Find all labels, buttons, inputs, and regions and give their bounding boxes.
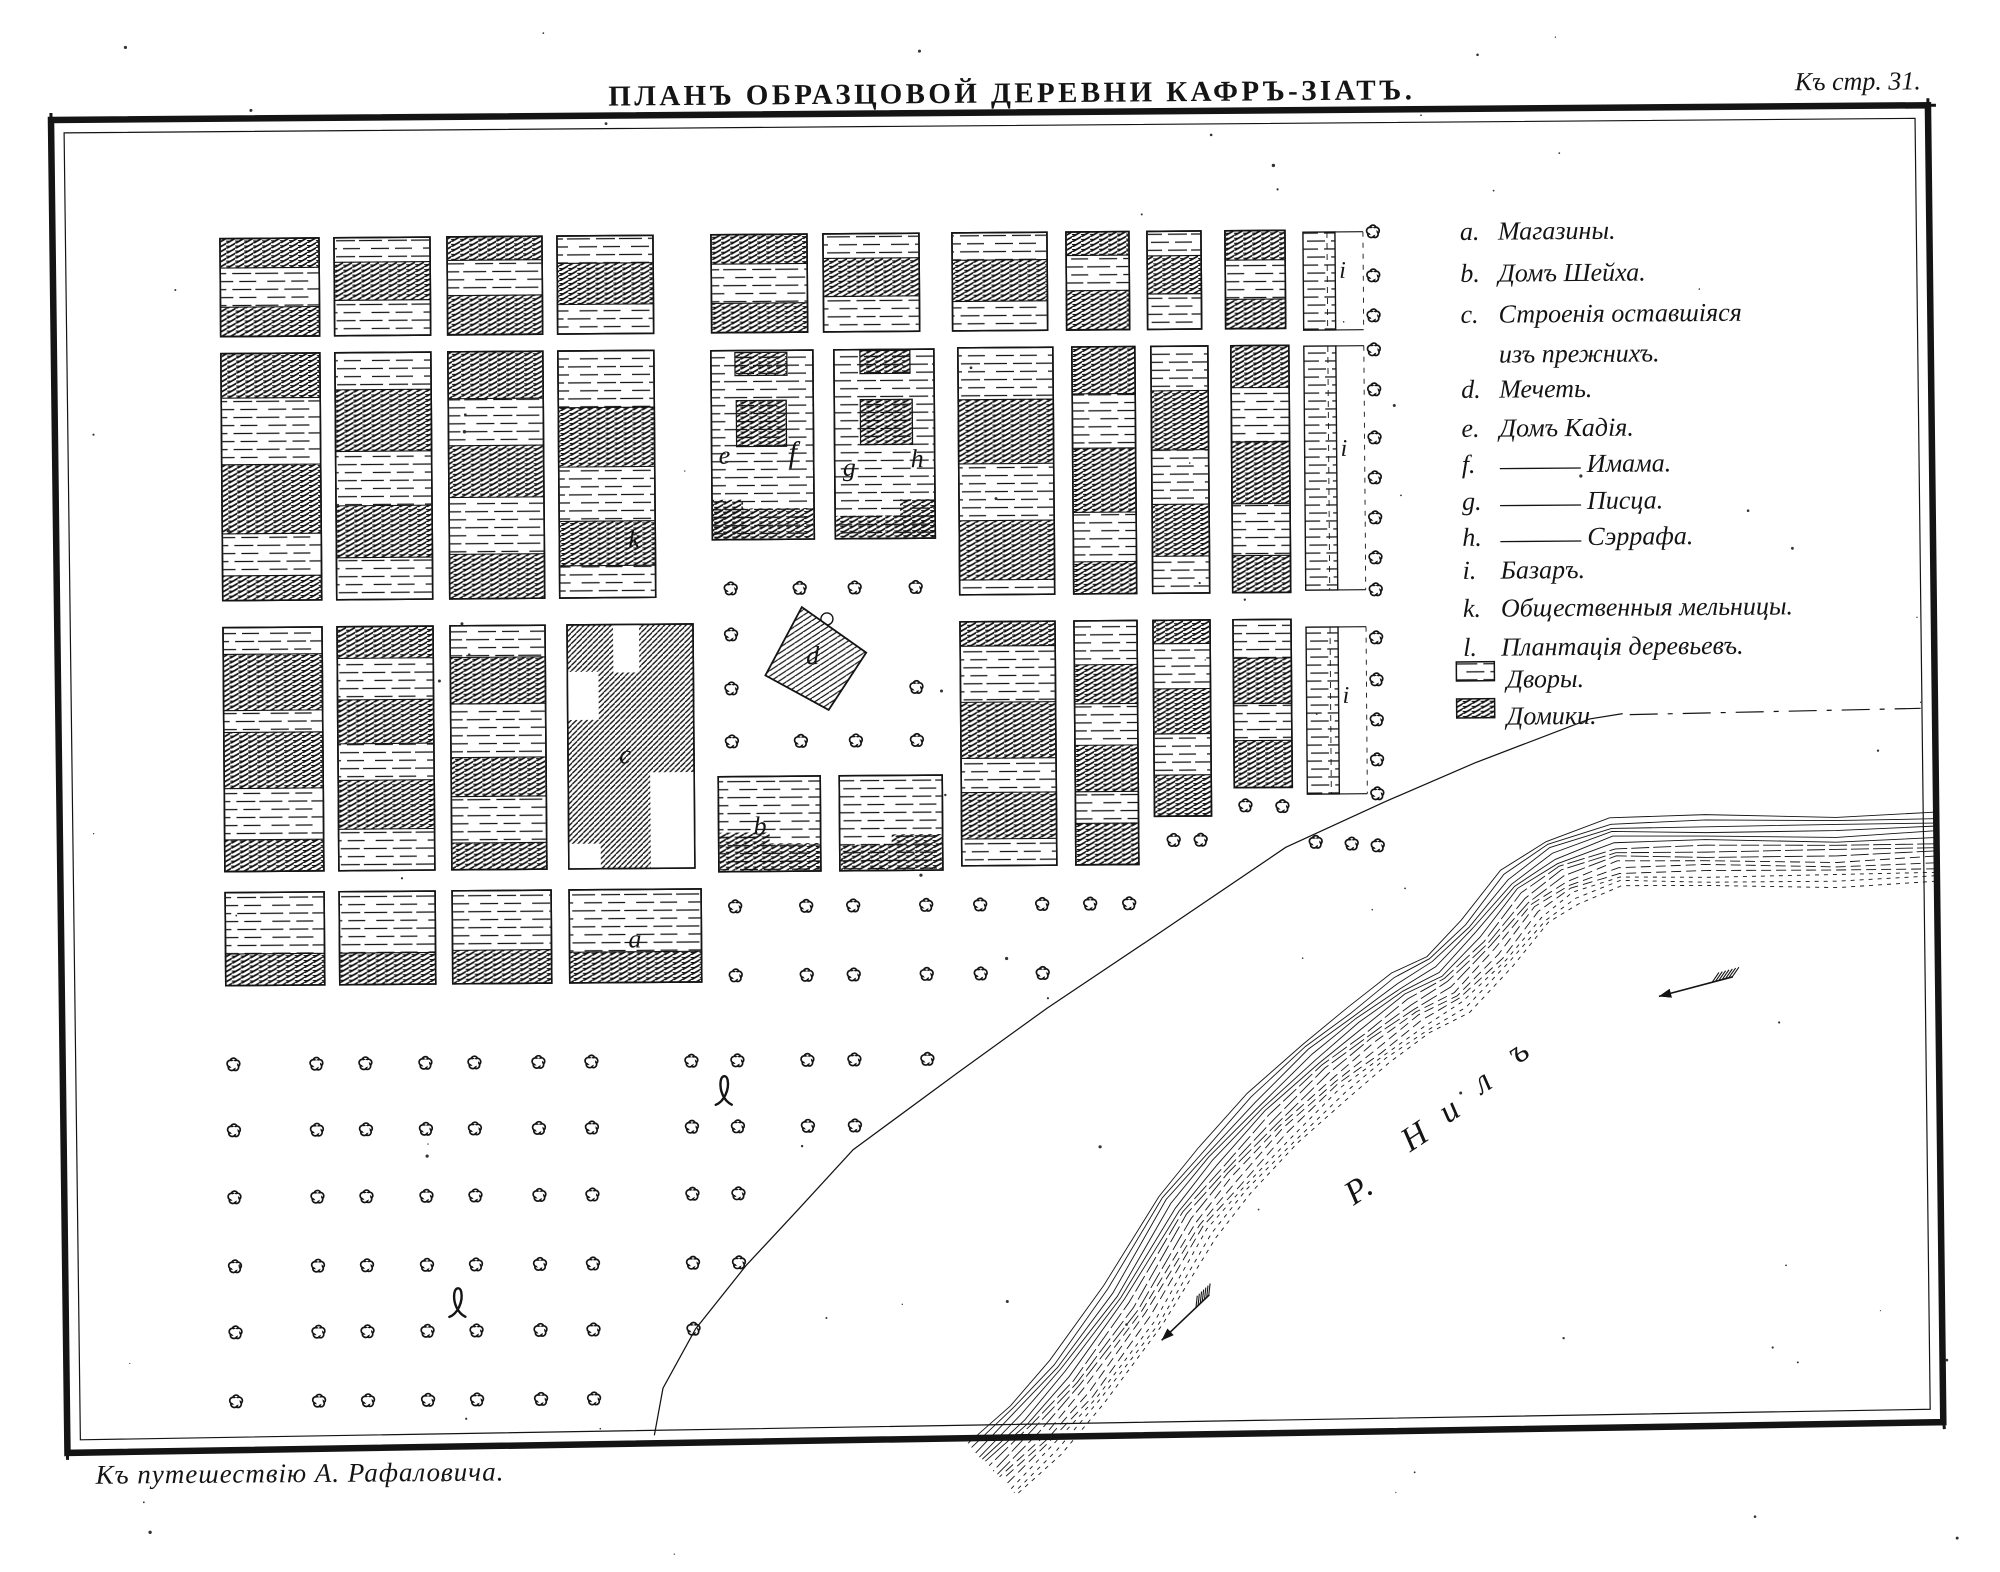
svg-text:d.: d. xyxy=(1461,375,1481,404)
svg-text:Писца.: Писца. xyxy=(1586,485,1663,515)
svg-text:Плантація деревьевъ.: Плантація деревьевъ. xyxy=(1500,631,1744,662)
svg-text:Сэррафа.: Сэррафа. xyxy=(1587,521,1693,551)
svg-text:a: a xyxy=(628,924,641,953)
svg-text:k.: k. xyxy=(1463,594,1481,623)
svg-text:Домики.: Домики. xyxy=(1504,701,1597,731)
svg-text:i: i xyxy=(1339,258,1346,284)
svg-text:Магазины.: Магазины. xyxy=(1497,216,1616,246)
svg-text:h.: h. xyxy=(1462,523,1482,552)
svg-text:Къ путешествію А. Рафаловича: Къ путешествію А. Рафаловича. xyxy=(95,1456,505,1489)
svg-text:Строенія оставшіяся: Строенія оставшіяся xyxy=(1498,298,1741,329)
svg-text:g: g xyxy=(843,453,856,482)
svg-text:i: i xyxy=(1342,683,1349,709)
svg-text:c: c xyxy=(619,739,631,769)
svg-text:Дворы.: Дворы. xyxy=(1503,664,1584,694)
svg-text:g.: g. xyxy=(1462,487,1482,516)
svg-text:изъ прежнихъ.: изъ прежнихъ. xyxy=(1499,338,1660,368)
svg-text:b.: b. xyxy=(1460,259,1480,288)
svg-text:d: d xyxy=(806,641,820,670)
svg-text:Имама.: Имама. xyxy=(1586,448,1672,478)
svg-text:Мечеть.: Мечеть. xyxy=(1498,374,1592,404)
svg-text:e.: e. xyxy=(1461,414,1479,443)
svg-text:Базаръ.: Базаръ. xyxy=(1499,555,1585,585)
svg-text:l.: l. xyxy=(1463,633,1477,662)
svg-text:Домъ Кадія.: Домъ Кадія. xyxy=(1496,413,1634,443)
svg-text:c.: c. xyxy=(1460,300,1478,329)
svg-text:h: h xyxy=(911,444,924,473)
svg-text:i: i xyxy=(1341,436,1348,462)
svg-text:i.: i. xyxy=(1462,556,1476,585)
svg-text:k: k xyxy=(628,524,640,553)
svg-text:a.: a. xyxy=(1460,217,1480,246)
svg-text:f.: f. xyxy=(1462,450,1476,479)
svg-text:Домъ Шейха.: Домъ Шейха. xyxy=(1495,257,1646,287)
svg-text:Къ стр. 31.: Къ стр. 31. xyxy=(1794,66,1921,96)
svg-text:e: e xyxy=(719,441,731,470)
svg-text:b: b xyxy=(753,811,766,840)
svg-text:Общественныя мельницы.: Общественныя мельницы. xyxy=(1501,591,1793,622)
svg-text:ПЛАНЪ ОБРАЗЦОВОЙ ДЕРЕВНИ КА: ПЛАНЪ ОБРАЗЦОВОЙ ДЕРЕВНИ КАФРЪ-ЗІАТЪ. xyxy=(608,73,1415,112)
